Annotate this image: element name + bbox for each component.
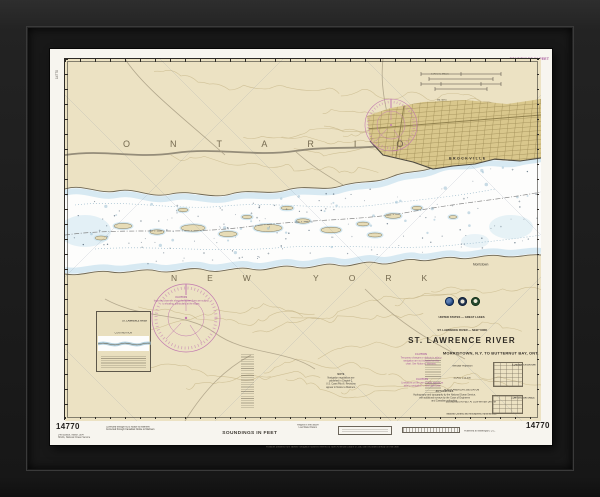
- graduation-ticks-top: [65, 59, 539, 62]
- chart-body: STATUTE MILES METERS ONTARIO NEW YORK BR…: [64, 58, 540, 420]
- commerce-seal-icon: [458, 297, 467, 306]
- margin-ruler: [402, 427, 460, 433]
- agency-logos: [395, 297, 529, 306]
- graduation-ticks-left: [65, 59, 68, 419]
- chart-paper: U.S. DEPARTMENT OF COMMERCE — NATIONAL O…: [50, 49, 552, 445]
- shallow-patch: [489, 215, 533, 239]
- conversion-table: [492, 395, 523, 414]
- state-label: NEW YORK: [171, 273, 457, 283]
- continuation-inset: ST. LAWRENCE RIVER CONTINUATION: [96, 311, 151, 372]
- chart-title: ST. LAWRENCE RIVER: [395, 336, 529, 345]
- inset-notes-lines: [101, 356, 146, 368]
- chart-number-right: 14770: [526, 421, 550, 430]
- low-water-datum-table: [493, 362, 523, 387]
- graduation-ticks-right: [537, 59, 540, 419]
- marginal-note-column: [241, 354, 254, 408]
- inset-river-graphic: [98, 336, 151, 351]
- shallow-patch: [461, 234, 489, 248]
- footer-note: Positions obtained from satellite naviga…: [131, 438, 471, 456]
- scalebar-label-top: STATUTE MILES: [431, 65, 485, 83]
- town-label: Morristown: [473, 255, 507, 273]
- margin-note-box-lines: [342, 429, 388, 432]
- authorities-note: AUTHORITIES Hydrography and topography b…: [350, 390, 406, 429]
- province-label: ONTARIO: [123, 139, 443, 149]
- framed-nautical-chart: U.S. DEPARTMENT OF COMMERCE — NATIONAL O…: [0, 0, 600, 497]
- noaa-logo-icon: [445, 297, 454, 306]
- city-label: BROCKVILLE: [449, 149, 525, 167]
- chart-number-left: 14770: [56, 422, 80, 431]
- note-center: NOTE Navigation regulations are publishe…: [296, 373, 340, 421]
- scalebar-label-bottom: METERS: [437, 91, 466, 109]
- margin-note-box: [338, 426, 392, 435]
- inset-river-band: [98, 336, 149, 351]
- nos-emblem-icon: [471, 297, 480, 306]
